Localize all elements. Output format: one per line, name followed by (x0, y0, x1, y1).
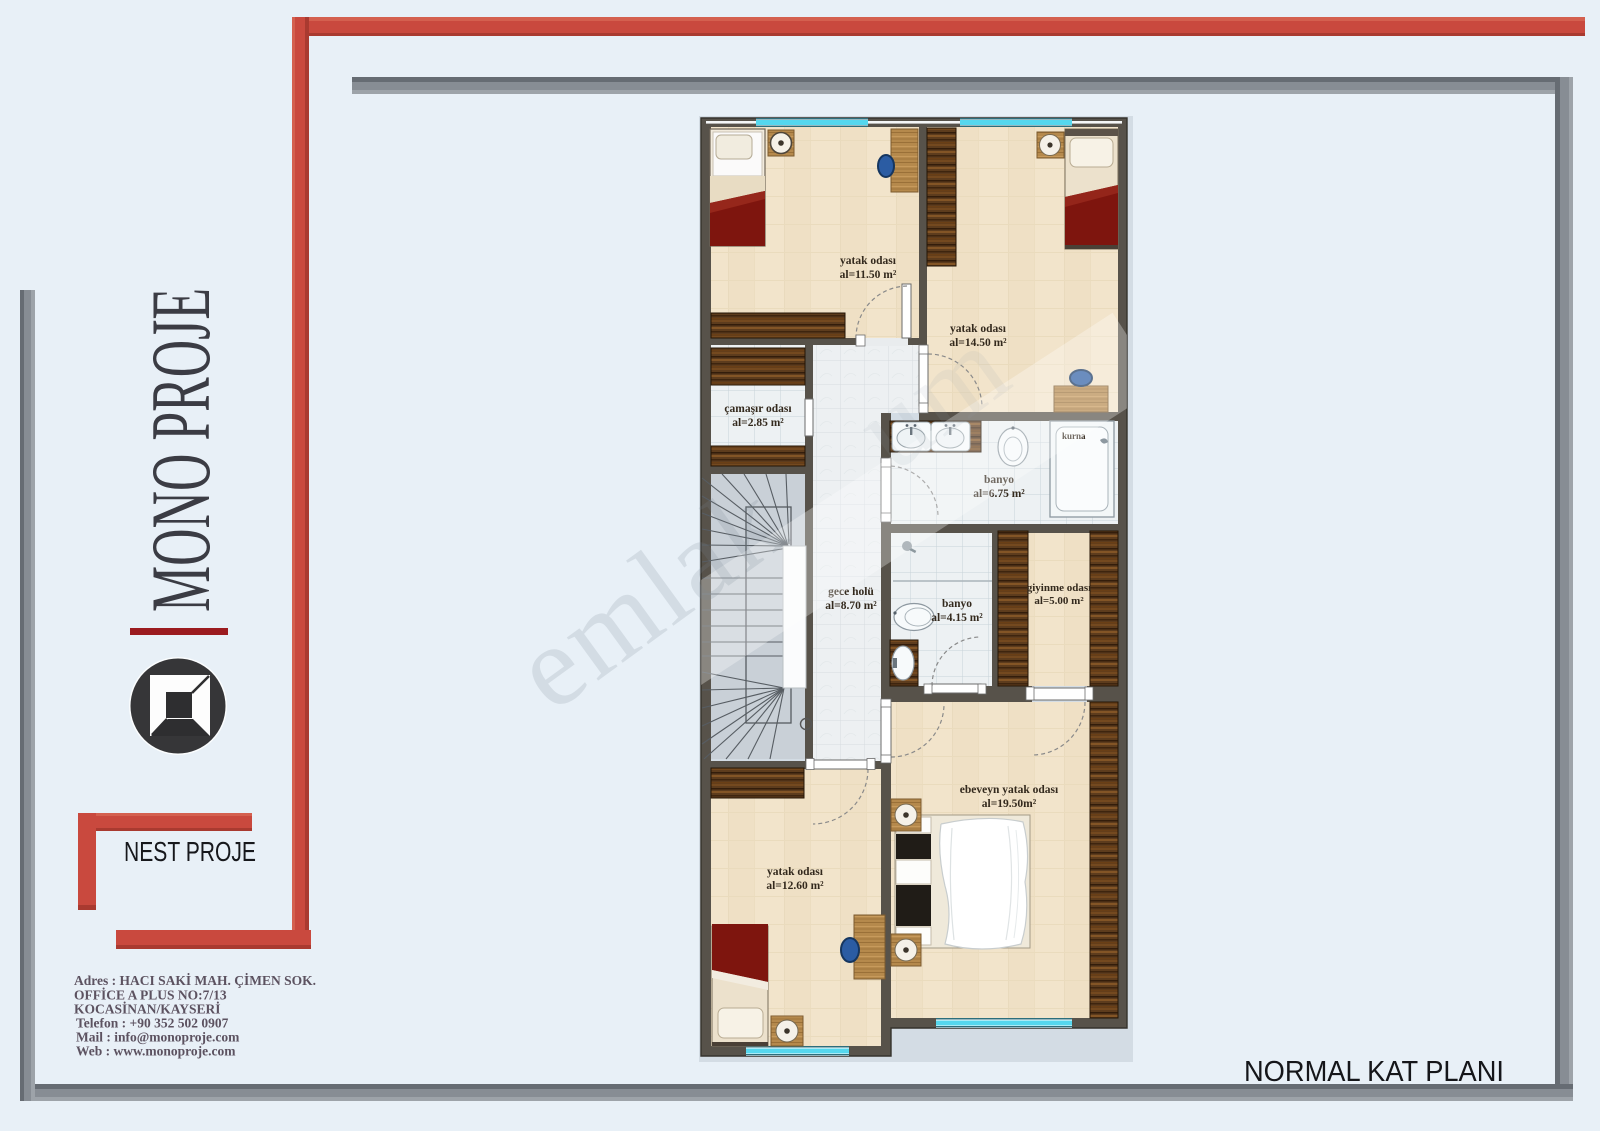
svg-text:çamaşır odası: çamaşır odası (724, 403, 792, 415)
svg-text:ebeveyn yatak odası: ebeveyn yatak odası (960, 784, 1059, 796)
svg-text:Telefon : +90 352 502 0907: Telefon : +90 352 502 0907 (76, 1016, 229, 1031)
svg-text:al=12.60 m²: al=12.60 m² (766, 880, 824, 892)
svg-text:al=4.15 m²: al=4.15 m² (931, 612, 983, 624)
svg-text:Adres : HACI SAKİ MAH. ÇİMEN S: Adres : HACI SAKİ MAH. ÇİMEN SOK. (74, 973, 316, 988)
svg-text:al=11.50 m²: al=11.50 m² (840, 269, 897, 281)
svg-text:NORMAL KAT PLANI: NORMAL KAT PLANI (1244, 1056, 1504, 1088)
svg-text:al=8.70 m²: al=8.70 m² (825, 600, 877, 612)
svg-text:MONO PROJE: MONO PROJE (134, 288, 228, 612)
svg-text:al=19.50m²: al=19.50m² (982, 798, 1037, 810)
svg-text:KOCASİNAN/KAYSERİ: KOCASİNAN/KAYSERİ (74, 1002, 221, 1017)
svg-text:Web : www.monoproje.com: Web : www.monoproje.com (76, 1044, 236, 1059)
svg-text:yatak odası: yatak odası (767, 866, 824, 878)
svg-text:banyo: banyo (942, 598, 972, 610)
svg-text:yatak odası: yatak odası (840, 255, 897, 267)
svg-text:OFFİCE A PLUS NO:7/13: OFFİCE A PLUS NO:7/13 (74, 988, 227, 1003)
svg-text:al=5.00 m²: al=5.00 m² (1034, 595, 1084, 607)
svg-text:al=2.85 m²: al=2.85 m² (732, 417, 784, 429)
svg-text:giyinme odası: giyinme odası (1027, 582, 1091, 594)
svg-text:Mail : info@monoproje.com: Mail : info@monoproje.com (76, 1030, 240, 1045)
svg-text:NEST PROJE: NEST PROJE (124, 836, 256, 867)
